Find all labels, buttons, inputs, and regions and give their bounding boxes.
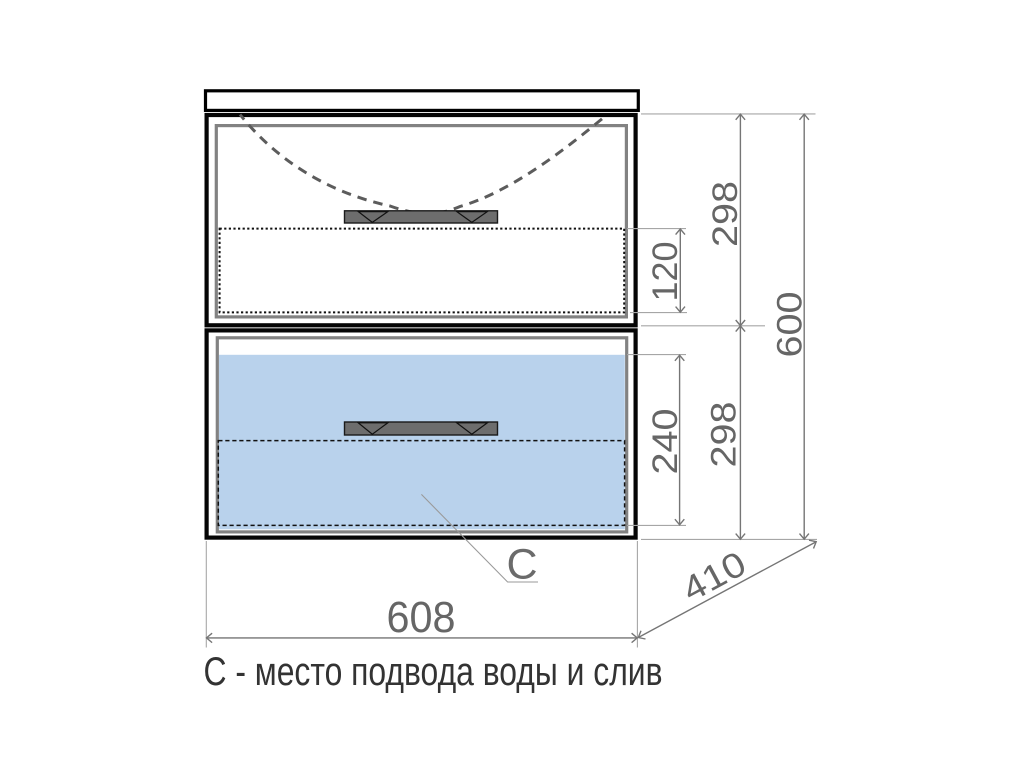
svg-text:608: 608 xyxy=(387,593,456,642)
svg-text:298: 298 xyxy=(706,181,745,247)
svg-text:С - место подвода воды и слив: С - место подвода воды и слив xyxy=(204,650,663,694)
svg-text:120: 120 xyxy=(646,242,685,302)
svg-text:240: 240 xyxy=(646,409,685,475)
svg-text:298: 298 xyxy=(705,402,744,468)
svg-text:600: 600 xyxy=(771,292,810,358)
svg-text:C: C xyxy=(506,540,537,588)
